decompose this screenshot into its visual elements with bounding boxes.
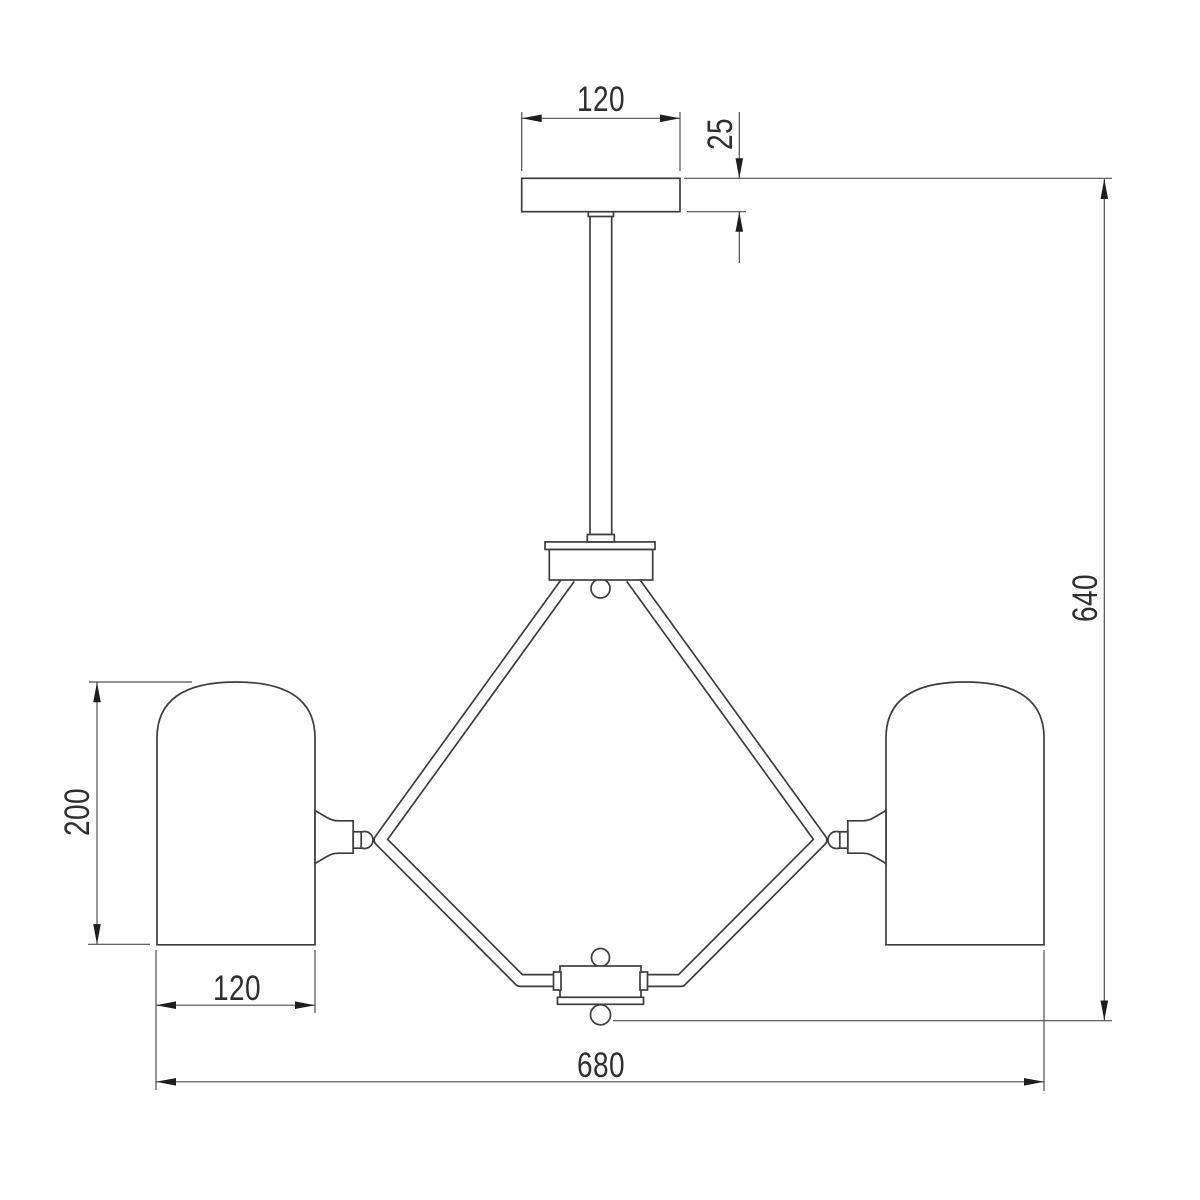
- bottom-hub-plate: [558, 997, 644, 1004]
- bottom-collar-right: [640, 972, 648, 990]
- hub-body: [549, 549, 652, 580]
- technical-drawing-canvas: 120 25 640 200 120 680: [0, 0, 1200, 1200]
- hub-flange: [545, 542, 655, 550]
- bottom-finial-ball: [591, 1005, 611, 1025]
- lamp-shade-right: [886, 682, 1044, 945]
- shade-socket-left: [315, 811, 361, 864]
- dim-label-fixture-width: 680: [577, 1046, 625, 1086]
- bottom-collar-left: [554, 972, 562, 990]
- dim-label-canopy-width: 120: [577, 80, 625, 120]
- stem-bottom-collar: [587, 535, 614, 542]
- dim-label-shade-width: 120: [213, 969, 261, 1009]
- lamp-shade-left: [157, 682, 315, 945]
- frame-arm-right: [632, 578, 822, 981]
- ceiling-canopy: [522, 178, 680, 211]
- dim-label-fixture-height: 640: [1066, 574, 1106, 622]
- hanging-stem: [590, 212, 612, 535]
- frame-arm-left: [380, 578, 570, 981]
- dim-label-shade-height: 200: [58, 788, 98, 836]
- bottom-hub-block: [560, 966, 641, 997]
- hub-ball: [591, 579, 610, 598]
- shade-socket-right: [840, 811, 886, 864]
- dim-label-canopy-height: 25: [701, 118, 741, 150]
- bottom-ball-top: [592, 949, 610, 967]
- pendant-lamp-dimension-drawing: [0, 0, 1200, 1200]
